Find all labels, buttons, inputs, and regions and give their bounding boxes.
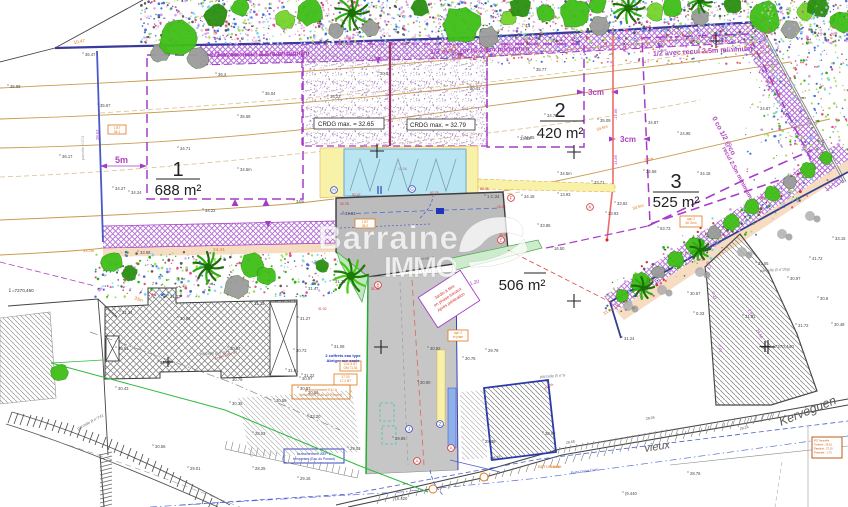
svg-text:50.08: 50.08 [480, 187, 489, 191]
svg-text:30.8: 30.8 [820, 296, 829, 301]
svg-text:Abriger sur socle: Abriger sur socle [327, 358, 361, 363]
svg-text:28.63: 28.63 [95, 129, 100, 140]
svg-text:31.23: 31.23 [254, 301, 265, 306]
svg-text:41.72: 41.72 [812, 256, 823, 261]
svg-text:34.18: 34.18 [524, 194, 535, 199]
svg-text:Prestrele : 1,70: Prestrele : 1,70 [814, 451, 832, 455]
svg-text:1/2 avec recul 2.5m minimum: 1/2 avec recul 2.5m minimum [210, 48, 310, 59]
svg-text:30.35: 30.35 [232, 401, 243, 406]
svg-text:Pasdimit : 27,20: Pasdimit : 27,20 [814, 447, 833, 451]
svg-text:36.23: 36.23 [330, 94, 341, 99]
svg-text:33.85: 33.85 [540, 223, 551, 228]
svg-text:31.72: 31.72 [798, 323, 809, 328]
svg-text:31.24: 31.24 [624, 336, 635, 341]
svg-text:(9.440: (9.440 [625, 491, 638, 496]
svg-text:G: G [410, 187, 414, 192]
svg-text:Z: Z [439, 422, 442, 427]
svg-text:Barraine: Barraine [318, 219, 458, 256]
svg-text:-17.89: -17.89 [613, 108, 618, 120]
svg-text:30.57: 30.57 [230, 346, 241, 351]
svg-text:31.48: 31.48 [371, 287, 380, 291]
svg-text:↧=7270,460: ↧=7270,460 [8, 288, 34, 293]
svg-text:34.58: 34.58 [646, 169, 657, 174]
svg-text:CRDG max. = 32.79: CRDG max. = 32.79 [410, 122, 466, 129]
svg-text:30.43: 30.43 [118, 386, 129, 391]
svg-text:30.53: 30.53 [380, 71, 391, 76]
svg-text:+7270,440: +7270,440 [772, 344, 794, 349]
svg-text:31.47: 31.47 [308, 286, 319, 291]
svg-text:35.77: 35.77 [536, 67, 547, 72]
svg-text:33.2m: 33.2m [83, 248, 95, 253]
svg-text:30.78: 30.78 [232, 377, 243, 382]
svg-text:36.88: 36.88 [10, 84, 21, 89]
svg-text:30.41: 30.41 [470, 86, 481, 91]
svg-text:H: H [332, 188, 335, 193]
svg-text:29.78: 29.78 [488, 348, 499, 353]
svg-text:34.5m: 34.5m [240, 167, 252, 172]
svg-text:525 m²: 525 m² [653, 194, 700, 211]
svg-text:33.71: 33.71 [594, 180, 605, 185]
svg-text:30.73: 30.73 [296, 348, 307, 353]
svg-text:3: 3 [670, 171, 681, 193]
svg-text:36.1: 36.1 [114, 130, 120, 134]
svg-text:35.67: 35.67 [100, 103, 111, 108]
svg-text:13.93: 13.93 [560, 192, 571, 197]
svg-text:J: J [408, 427, 410, 432]
svg-text:30.59: 30.59 [276, 398, 287, 403]
svg-text:33.15: 33.15 [835, 236, 846, 241]
svg-text:62.75: 62.75 [430, 191, 439, 195]
svg-text:36.17: 36.17 [62, 154, 73, 159]
svg-text:30.97: 30.97 [302, 376, 313, 381]
svg-text:33.20: 33.20 [310, 414, 321, 419]
svg-text:29.01: 29.01 [190, 466, 201, 471]
svg-text:F: F [510, 196, 513, 201]
svg-text:420 m²: 420 m² [537, 125, 584, 142]
svg-text:33.92: 33.92 [140, 250, 151, 255]
svg-text:29.85: 29.85 [395, 436, 406, 441]
svg-text:(S.420: (S.420 [395, 496, 408, 501]
svg-text:16.50: 16.50 [550, 464, 561, 469]
svg-text:temporiser (Eau du Ponant): temporiser (Eau du Ponant) [293, 457, 335, 461]
svg-text:33.93: 33.93 [608, 211, 619, 216]
svg-text:31.08: 31.08 [334, 344, 345, 349]
svg-text:29.16: 29.16 [300, 476, 311, 481]
svg-text:31.36: 31.36 [335, 279, 346, 284]
svg-text:35.58: 35.58 [240, 114, 251, 119]
svg-text:2: 2 [554, 100, 565, 122]
svg-text:34.76: 34.76 [547, 113, 558, 118]
svg-text:3cm: 3cm [620, 135, 636, 144]
svg-text:34.85: 34.85 [524, 135, 535, 140]
svg-text:CRDG max. = 32.65: CRDG max. = 32.65 [318, 121, 374, 128]
svg-text:28.76: 28.76 [690, 471, 701, 476]
svg-text:31.27: 31.27 [300, 316, 311, 321]
svg-text:30.56: 30.56 [155, 444, 166, 449]
svg-text:E: E [499, 238, 502, 243]
svg-text:14.89: 14.89 [613, 154, 618, 165]
svg-text:36.4: 36.4 [218, 72, 227, 77]
svg-text:34.18: 34.18 [700, 171, 711, 176]
svg-text:34.71: 34.71 [180, 146, 191, 151]
svg-text:46 Gcm: 46 Gcm [685, 221, 697, 225]
svg-text:31.02: 31.02 [318, 307, 327, 311]
svg-text:31.05: 31.05 [758, 261, 769, 266]
svg-text:9.15: 9.15 [385, 93, 389, 100]
svg-text:24.87: 24.87 [760, 106, 771, 111]
svg-text:24.95: 24.95 [680, 131, 691, 136]
svg-text:24.41: 24.41 [213, 247, 225, 253]
svg-text:31.34: 31.34 [122, 310, 133, 315]
svg-text:30.86: 30.86 [308, 390, 319, 395]
svg-text:29.03: 29.03 [350, 446, 361, 451]
svg-text:34.87: 34.87 [648, 120, 659, 125]
svg-text:35.04: 35.04 [265, 91, 276, 96]
svg-text:31.31: 31.31 [745, 314, 756, 319]
svg-text:3cm: 3cm [588, 88, 604, 97]
svg-text:28.03: 28.03 [255, 431, 266, 436]
svg-text:5m: 5m [115, 155, 128, 165]
svg-text:31.03: 31.03 [170, 294, 181, 299]
svg-text:30.76: 30.76 [465, 356, 476, 361]
svg-text:31.01: 31.01 [288, 368, 299, 373]
svg-text:34m: 34m [296, 199, 305, 204]
svg-text:28.39: 28.39 [485, 439, 496, 444]
svg-text:tri plam: tri plam [453, 335, 464, 339]
svg-text:32.78: 32.78 [340, 202, 349, 206]
svg-text:IMMO: IMMO [384, 252, 458, 284]
svg-text:30.08: 30.08 [499, 233, 508, 237]
svg-text:36.47: 36.47 [85, 52, 96, 57]
svg-text:30.67: 30.67 [690, 291, 701, 296]
svg-text:1 C.34: 1 C.34 [487, 194, 500, 199]
svg-text:30.90: 30.90 [420, 380, 431, 385]
svg-text:35.09: 35.09 [600, 118, 611, 123]
svg-text:33.82: 33.82 [617, 201, 628, 206]
svg-text:GM 71.51: GM 71.51 [344, 366, 358, 370]
svg-text:1: 1 [172, 159, 183, 181]
svg-text:34.24: 34.24 [131, 190, 142, 195]
svg-text:Trebloin : 26,51: Trebloin : 26,51 [814, 443, 832, 447]
svg-text:53.73: 53.73 [660, 226, 671, 231]
svg-text:34.22: 34.22 [205, 208, 216, 213]
svg-text:16.50: 16.50 [554, 246, 565, 251]
svg-text:30.48: 30.48 [834, 322, 845, 327]
svg-text:52.47: 52.47 [352, 193, 361, 197]
svg-text:0.33: 0.33 [696, 311, 705, 316]
svg-text:30.51: 30.51 [118, 346, 129, 351]
svg-text:33.03: 33.03 [345, 211, 356, 216]
svg-text:30.97: 30.97 [790, 276, 801, 281]
svg-text:30.48: 30.48 [160, 360, 171, 365]
svg-text:688 m²: 688 m² [155, 182, 202, 199]
svg-text:34.27: 34.27 [115, 186, 126, 191]
svg-text:30.88: 30.88 [180, 316, 191, 321]
svg-text:17.2 BT: 17.2 BT [340, 379, 351, 383]
svg-text:28.96: 28.96 [545, 431, 556, 436]
svg-text:28.25: 28.25 [255, 466, 266, 471]
svg-text:PO Tronnelle: PO Tronnelle [814, 439, 830, 443]
svg-text:10.28: 10.28 [497, 205, 506, 209]
svg-text:12.06: 12.06 [398, 167, 407, 171]
svg-text:34.5m: 34.5m [560, 171, 572, 176]
svg-text:506 m²: 506 m² [499, 277, 546, 294]
svg-text:parcelle n°274: parcelle n°274 [81, 136, 85, 160]
svg-text:30.82: 30.82 [430, 346, 441, 351]
